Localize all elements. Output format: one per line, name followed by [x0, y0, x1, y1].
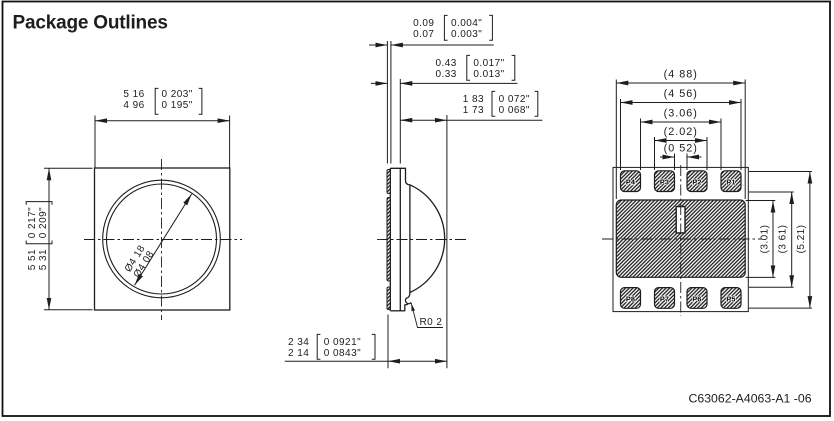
svg-text:0.07: 0.07: [413, 29, 434, 40]
svg-text:P5: P5: [726, 294, 735, 303]
svg-text:0.43: 0.43: [436, 58, 457, 69]
svg-text:2 34: 2 34: [288, 337, 309, 348]
svg-text:R0 2: R0 2: [420, 317, 443, 328]
svg-text:5 16: 5 16: [123, 89, 144, 100]
svg-text:P3: P3: [660, 178, 669, 187]
svg-text:(4 88): (4 88): [664, 68, 698, 80]
svg-text:0 203": 0 203": [162, 89, 193, 100]
svg-text:P4: P4: [626, 178, 636, 187]
svg-text:(3.01): (3.01): [760, 225, 771, 254]
svg-text:0 0843": 0 0843": [324, 348, 361, 359]
svg-text:0.09: 0.09: [413, 18, 434, 29]
svg-text:0.003": 0.003": [451, 29, 482, 40]
svg-text:0 072": 0 072": [499, 94, 530, 105]
svg-text:(2.02): (2.02): [664, 126, 698, 138]
svg-text:1 83: 1 83: [463, 94, 484, 105]
svg-text:0 209": 0 209": [38, 207, 49, 238]
svg-text:0 195": 0 195": [162, 100, 193, 111]
svg-text:(3 61): (3 61): [777, 225, 788, 254]
svg-text:5 31: 5 31: [38, 249, 49, 270]
svg-text:(3.06): (3.06): [664, 107, 698, 119]
svg-text:0 068": 0 068": [499, 105, 530, 116]
svg-text:4 96: 4 96: [123, 100, 144, 111]
svg-text:2 14: 2 14: [288, 348, 309, 359]
svg-text:P6: P6: [692, 294, 701, 303]
svg-text:P2: P2: [692, 178, 701, 187]
svg-text:5 51: 5 51: [27, 249, 38, 270]
svg-text:P7: P7: [660, 294, 669, 303]
svg-text:0 0921": 0 0921": [324, 337, 361, 348]
svg-text:0.33: 0.33: [436, 69, 457, 80]
svg-text:0.013": 0.013": [473, 69, 504, 80]
svg-text:(5.21): (5.21): [796, 225, 807, 254]
svg-text:(0 52): (0 52): [664, 142, 698, 154]
svg-text:(4 56): (4 56): [664, 88, 698, 100]
svg-text:P8: P8: [626, 294, 635, 303]
svg-text:0.017": 0.017": [473, 58, 504, 69]
svg-text:Package Outlines: Package Outlines: [13, 13, 168, 34]
svg-text:P1: P1: [726, 178, 735, 187]
svg-text:1 73: 1 73: [463, 105, 484, 116]
svg-text:0.004": 0.004": [451, 18, 482, 29]
svg-text:C63062-A4063-A1 -06: C63062-A4063-A1 -06: [689, 391, 812, 405]
svg-text:0 217": 0 217": [27, 207, 38, 238]
